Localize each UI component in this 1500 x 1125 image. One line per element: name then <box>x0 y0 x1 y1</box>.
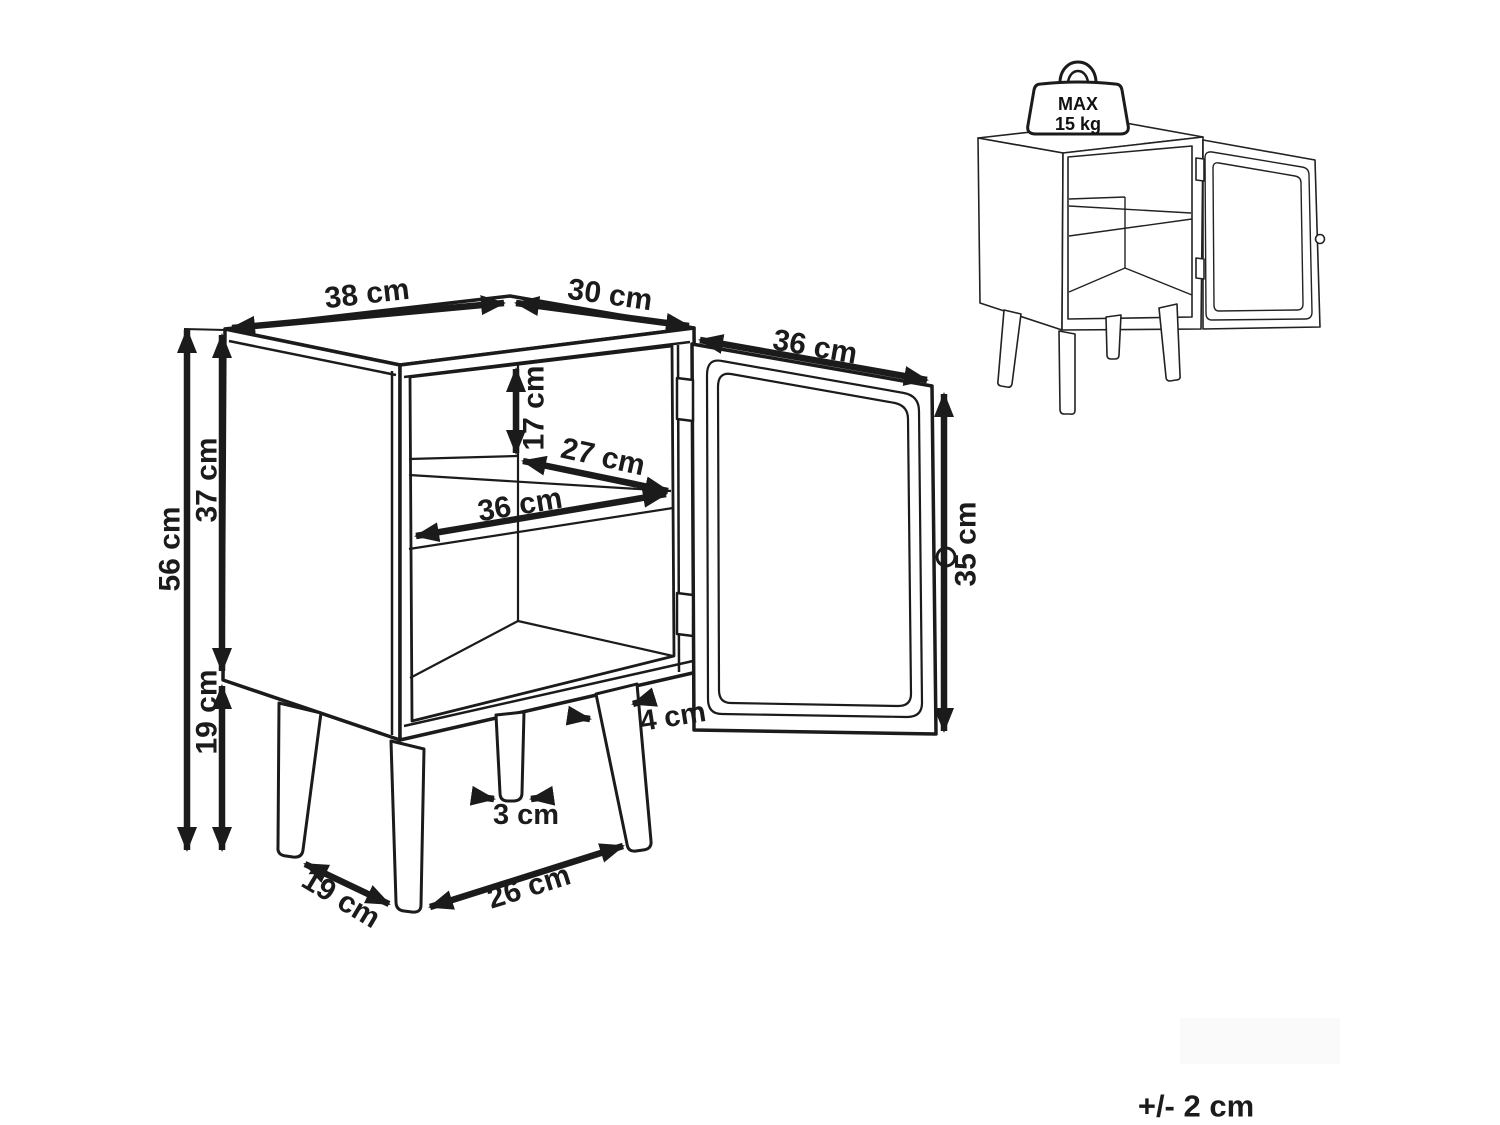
inset-leg-front-left <box>1059 331 1075 414</box>
label-leg-bottom-width: 3 cm <box>493 799 559 831</box>
leg-back-left <box>278 703 321 857</box>
inset-left-face <box>978 138 1063 330</box>
label-side-leg-spacing: 19 cm <box>296 863 386 935</box>
label-body-height: 37 cm <box>191 437 224 522</box>
tolerance-note: +/- 2 cm <box>1138 1089 1254 1124</box>
door-hinge-bottom <box>677 593 693 636</box>
inset-hinge-top <box>1196 158 1204 181</box>
inset-leg-back-right <box>1106 315 1121 359</box>
diagram-canvas: 38 cm 30 cm 36 cm 17 cm 27 cm 36 cm 56 c… <box>0 0 1500 1125</box>
watermark-remnant <box>1180 1018 1340 1064</box>
door-hinge-top <box>677 378 693 421</box>
leader-line-top-left <box>184 329 226 330</box>
furniture-dimension-diagram: 38 cm 30 cm 36 cm 17 cm 27 cm 36 cm 56 c… <box>0 0 1500 1125</box>
label-leg-height: 19 cm <box>191 669 224 754</box>
label-front-leg-spacing: 26 cm <box>483 858 574 915</box>
label-door-height: 35 cm <box>950 501 983 586</box>
inset-opening <box>1068 146 1192 319</box>
inset-hinge-bottom <box>1196 258 1204 279</box>
max-load-line2: 15 kg <box>1055 114 1101 134</box>
inset-door-knob <box>1316 235 1325 244</box>
label-total-height: 56 cm <box>154 506 187 591</box>
label-upper-compartment-height: 17 cm <box>518 365 551 450</box>
main-cabinet-drawing <box>223 296 955 912</box>
max-load-inset-figure: MAX 15 kg <box>978 62 1325 414</box>
max-load-line1: MAX <box>1058 94 1098 114</box>
arrow-leg-bottom-left <box>473 796 494 799</box>
leg-back-right <box>496 712 524 801</box>
cabinet-left-face <box>223 329 400 740</box>
arrow-leg-top-left <box>570 716 590 719</box>
inset-leg-back-left <box>998 310 1021 387</box>
leg-front-left <box>391 741 424 912</box>
cabinet-door <box>692 344 936 734</box>
inset-leg-front-right <box>1159 304 1180 381</box>
